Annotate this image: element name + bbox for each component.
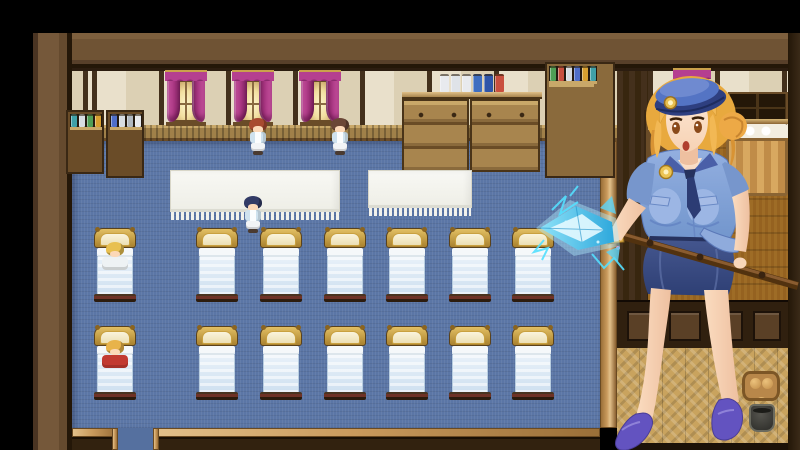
ice-spearhead	[536, 196, 620, 262]
pocket-flap	[698, 196, 718, 206]
policewoman-overlay[interactable]	[0, 0, 800, 450]
left-hand	[734, 258, 747, 269]
game-screen	[0, 0, 800, 450]
hair-bun	[719, 112, 747, 140]
uniform-badge	[660, 166, 673, 179]
open-mouth	[683, 141, 690, 151]
pocket-flap	[650, 196, 670, 206]
high-heels	[615, 399, 742, 450]
